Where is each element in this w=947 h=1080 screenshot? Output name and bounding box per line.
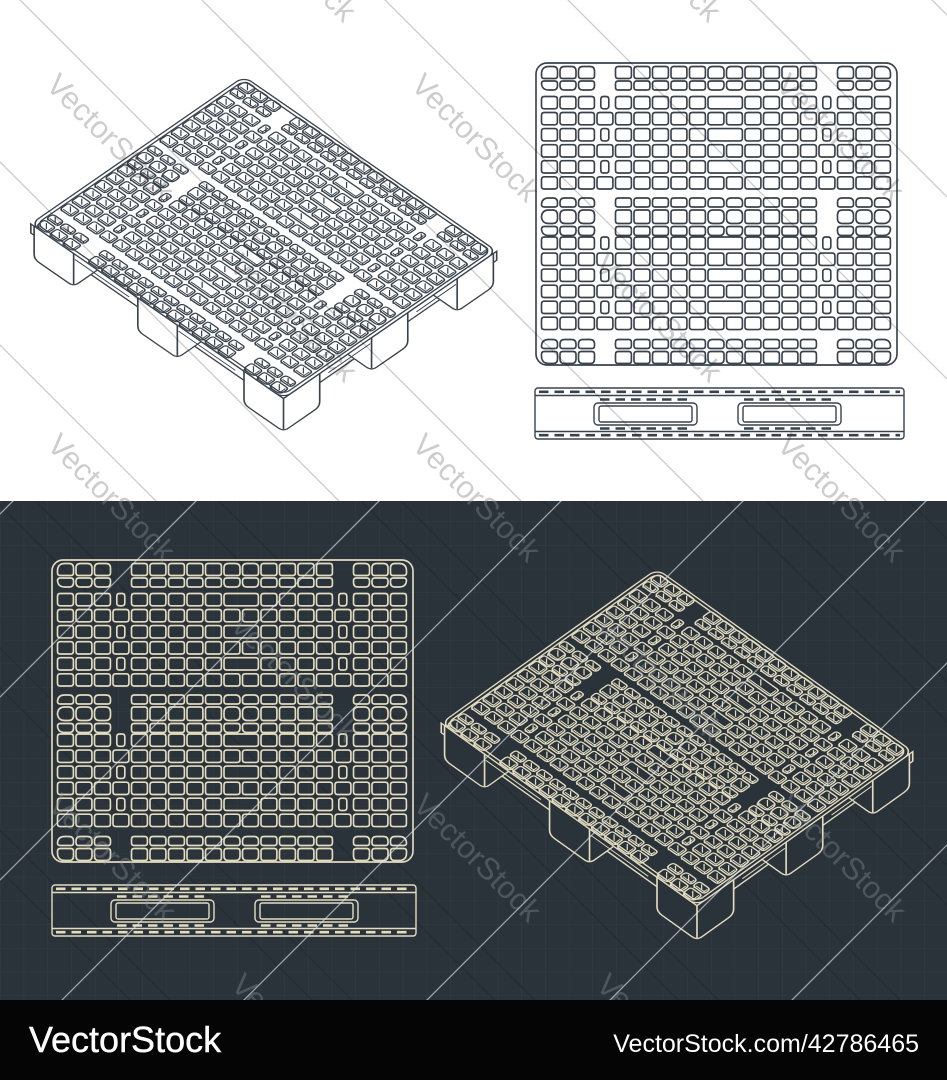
svg-text:VectorStock: VectorStock [29, 1019, 222, 1060]
svg-text:VectorStock.com/42786465: VectorStock.com/42786465 [613, 1030, 919, 1058]
